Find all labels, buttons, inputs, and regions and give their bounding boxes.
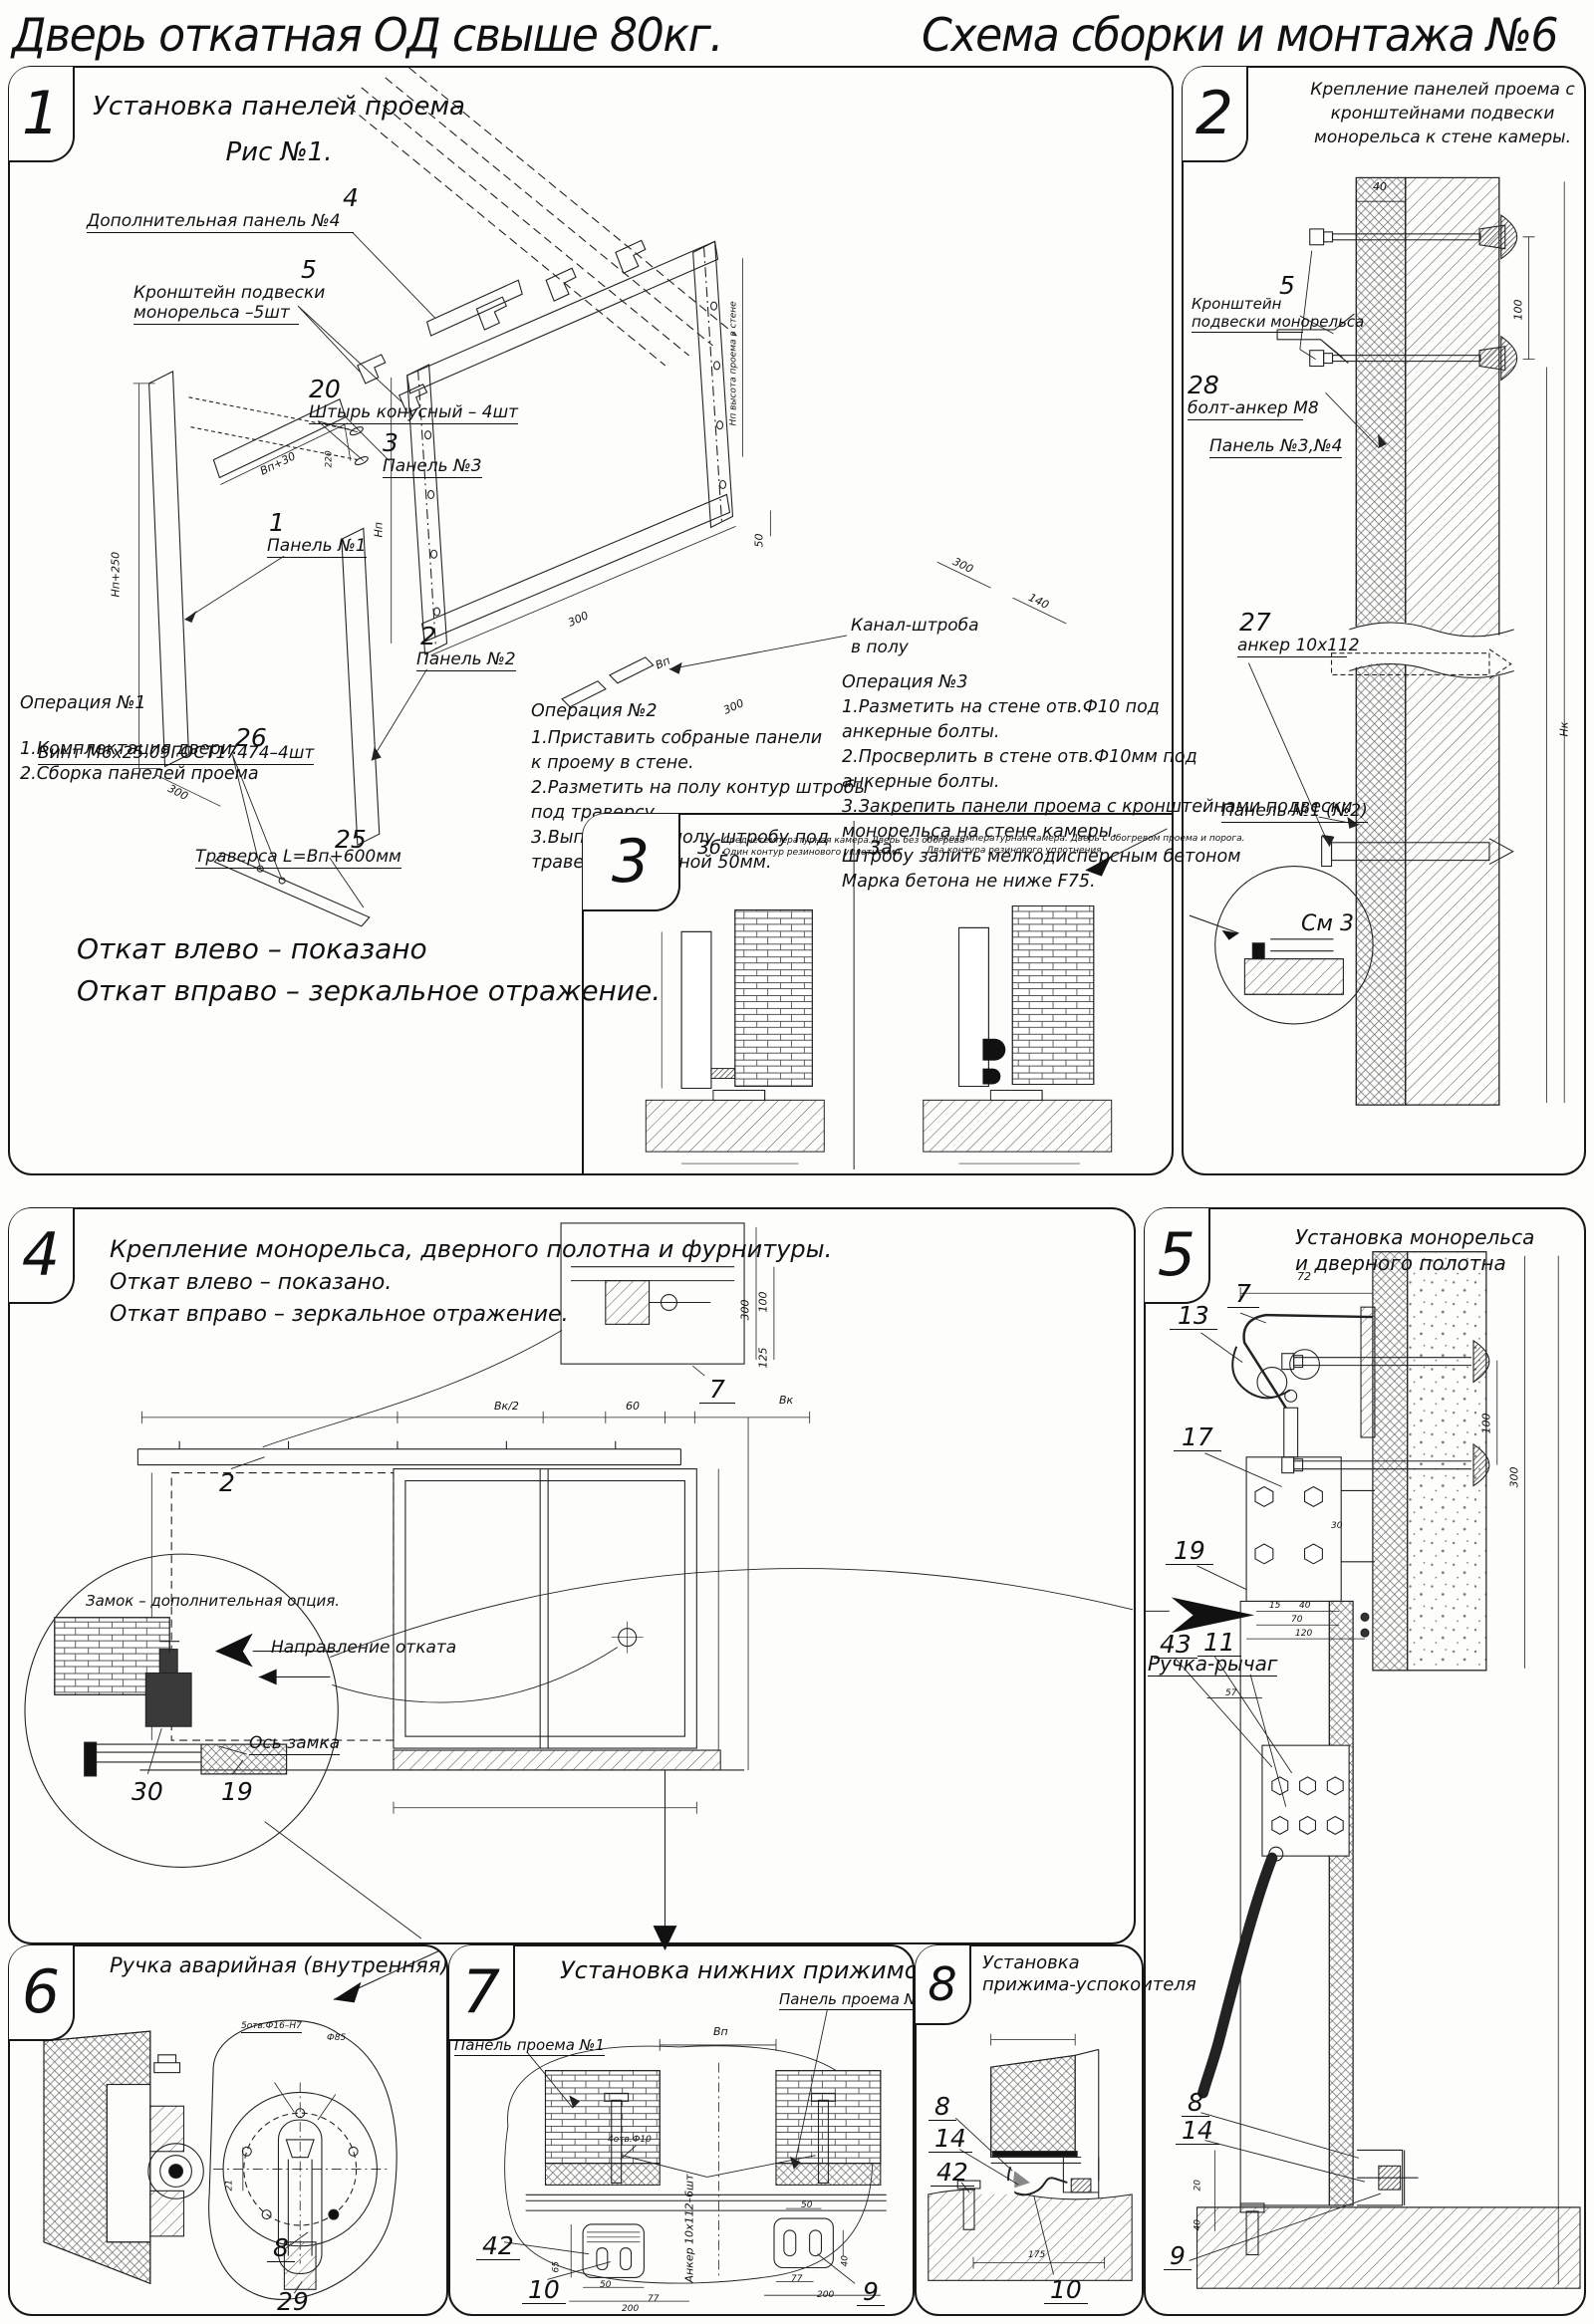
p5-callout-8: 8 [1182, 2090, 1209, 2117]
panel-2-title2: кронштейнами подвески [1303, 106, 1582, 124]
p8-callout-10: 10 [1044, 2277, 1088, 2304]
p5-dim-300: 300 [1508, 1467, 1520, 1488]
p2-panel34-label: Панель №3,№4 [1209, 438, 1342, 458]
p4-dim-vk2: Вк/2 [494, 1401, 519, 1413]
p2-callout-5-l1: Кронштейн [1192, 297, 1281, 313]
p4-callout-30: 30 [132, 1779, 163, 1805]
p5-dim-100: 100 [1480, 1414, 1492, 1434]
panel-3-number: 3 [583, 814, 680, 911]
callout-3-num: 3 [383, 430, 398, 456]
p7-callout-42: 42 [476, 2233, 520, 2260]
panel-5-title1: Установка монорельса [1295, 1227, 1534, 1248]
panel-8-number: 8 [916, 1945, 971, 2025]
p5-callout-13: 13 [1170, 1303, 1217, 1330]
note-right: Откат вправо – зеркальное отражение. [77, 976, 661, 1005]
panel-6-number: 6 [9, 1945, 75, 2041]
dim-220: 220 [326, 450, 335, 467]
panel-8-num-text: 8 [928, 1957, 956, 2011]
p7-panel2-label: Панель проема №2 [779, 1992, 930, 2010]
p8-callout-8: 8 [929, 2094, 956, 2121]
op1-line2: 2.Сборка панелей проема [20, 762, 259, 787]
p5-dim-20: 20 [1195, 2180, 1203, 2191]
p6-holes-label: 5отв.Ф16–Н7 [241, 2022, 302, 2033]
p5-dim-30: 30 [1331, 1522, 1342, 1531]
panel-1-subtitle: Рис №1. [80, 139, 478, 166]
p4-callout-7: 7 [699, 1377, 735, 1404]
p5-callout-7: 7 [1227, 1281, 1259, 1308]
p7-dim-vp: Вп [713, 2026, 728, 2038]
p6-callout-8: 8 [267, 2235, 295, 2262]
panel-4-num-text: 4 [22, 1220, 60, 1290]
panel-2-title3: монорельса к стене камеры. [1303, 129, 1582, 147]
p4-dim-vk: Вк [779, 1395, 793, 1407]
panel-5: 5 Установка монорельса и дверного полотн… [1144, 1207, 1586, 2316]
panel-4-title3: Откат вправо – зеркальное отражение. [110, 1303, 569, 1326]
p2-dim-40: 40 [1373, 181, 1387, 193]
callout-2-num: 2 [420, 624, 436, 649]
panel-7-number: 7 [449, 1945, 515, 2041]
p4-lock-axis-label: Ось замка [249, 1735, 340, 1755]
op2-line2: к проему в стене. [531, 751, 694, 776]
panel-3-num-text: 3 [612, 827, 650, 897]
p4-callout-2: 2 [219, 1470, 235, 1496]
fig3a-num: 3а. [869, 839, 899, 859]
p5-callout-17: 17 [1174, 1424, 1221, 1451]
panel-5-num-text: 5 [1158, 1220, 1195, 1290]
p2-callout-5-l2: подвески монорельса [1192, 315, 1303, 333]
p2-see3-label: См 3 [1301, 912, 1354, 935]
p2-dim-100: 100 [1512, 300, 1524, 321]
panel-4-number: 4 [9, 1208, 75, 1304]
panel-8-title1: Установка [982, 1954, 1080, 1973]
p7-dim-200b: 200 [817, 2291, 834, 2300]
p4-lock-note: Замок – дополнительная опция. [86, 1594, 340, 1610]
panel-2-number: 2 [1183, 67, 1248, 162]
panel-4: 4 Крепление монорельса, дверного полотна… [8, 1207, 1136, 1944]
callout-4-num: 4 [343, 185, 359, 211]
p7-dim-200a: 200 [622, 2305, 639, 2314]
p2-panel12-label: Панель №1 (№2) [1221, 803, 1368, 823]
callout-3-label: Панель №3 [383, 458, 482, 478]
op1-line1: 1.Комплектация двери. [20, 737, 238, 762]
op3-line1: 1.Разметить на стене отв.Ф10 под [842, 695, 1160, 720]
panel-1-title: Установка панелей проема [80, 94, 478, 121]
p5-dim-70: 70 [1291, 1616, 1302, 1625]
sheet-title: Дверь откатная ОД свыше 80кг. Схема сбор… [12, 8, 1584, 62]
p7-callout-9: 9 [857, 2279, 885, 2306]
p8-callout-42: 42 [930, 2160, 974, 2187]
panel-3: 3 3б. Среднетемпературная камера.Дверь б… [582, 813, 1174, 1175]
p7-callout-10: 10 [522, 2277, 566, 2304]
p4-dim-300: 300 [739, 1300, 751, 1321]
p6-callout-29: 29 [271, 2289, 315, 2316]
p4-dim-125: 125 [757, 1348, 769, 1369]
p7-dim-65: 65 [553, 2261, 562, 2272]
panel-7-num-text: 7 [462, 1957, 500, 2027]
p2-callout-5-num: 5 [1279, 273, 1295, 299]
callout-5-label2: монорельса –5шт [133, 305, 299, 325]
p7-panel1-label: Панель проема №1 [454, 2038, 605, 2056]
callout-1-label: Панель №1 [267, 538, 367, 558]
panel-8-title2: прижима-успокоителя [982, 1976, 1196, 1995]
note-left: Откат влево – показано [77, 934, 427, 963]
callout-20-label: Штырь конусный – 4шт [309, 404, 518, 424]
p5-dim-15: 15 [1269, 1602, 1280, 1611]
fig3a-caption1: Низкотемпературная камера. Дверь с обогр… [927, 835, 1245, 844]
panel-4-title2: Откат влево – показано. [110, 1271, 392, 1294]
p2-callout-27-num: 27 [1239, 610, 1271, 636]
p7-dim-50b: 50 [801, 2201, 812, 2210]
p7-holes-label: 4отв.Ф10 [608, 2136, 652, 2145]
op3-line2: анкерные болты. [842, 720, 999, 745]
p4-direction-label: Направление отката [271, 1640, 456, 1658]
p7-dim-77b: 77 [791, 2275, 802, 2284]
panel-2: 2 Крепление панелей проема с кронштейнам… [1182, 66, 1586, 1175]
panel-7-title: Установка нижних прижимов [560, 1958, 859, 1983]
panel-8: 8 Установка прижима-успокоителя 8 14 42 … [915, 1944, 1144, 2316]
p7-anchor-label: Анкер 10х112–6шт [683, 2174, 695, 2282]
p5-dim-57: 57 [1225, 1689, 1236, 1698]
panel-6-title: Ручка аварийная (внутренняя) [110, 1954, 428, 1976]
callout-5-num: 5 [301, 257, 317, 283]
p5-handle-label: Ручка-рычаг [1148, 1654, 1277, 1677]
panel-6-drawing [10, 1946, 446, 2314]
panel-5-number: 5 [1145, 1208, 1210, 1304]
p6-dim-21: 21 [226, 2180, 235, 2191]
p5-callout-9: 9 [1164, 2243, 1192, 2270]
p8-callout-14: 14 [929, 2126, 972, 2153]
p4-callout-19: 19 [221, 1779, 253, 1805]
p5-dim-72: 72 [1297, 1271, 1311, 1283]
panel-2-title1: Крепление панелей проема с [1303, 82, 1582, 100]
title-left: Дверь откатная ОД свыше 80кг. [12, 8, 722, 62]
panel-2-num-text: 2 [1195, 79, 1233, 148]
title-right: Схема сборки и монтажа №6 [922, 8, 1557, 62]
panel-1-number: 1 [9, 67, 75, 162]
dim-wall-height: Нп высота проема в стене [730, 301, 739, 425]
p8-dim-175: 175 [1028, 2251, 1045, 2260]
p7-dim-40: 40 [842, 2255, 851, 2266]
p4-dim-60: 60 [626, 1401, 640, 1413]
dim-np250: Нп+250 [110, 552, 122, 598]
p2-dim-nk: Нк [1558, 722, 1570, 737]
op2-line1: 1.Приставить собраные панели [531, 726, 822, 751]
p5-dim-40b: 40 [1195, 2219, 1203, 2230]
op3-title: Операция №3 [842, 670, 968, 695]
kanal-label1: Канал-штроба [851, 618, 979, 636]
op3-line3: 2.Просверлить в стене отв.Ф10мм под [842, 745, 1197, 770]
callout-2-label: Панель №2 [416, 651, 516, 671]
dim-50: 50 [753, 534, 765, 548]
p5-dim-120: 120 [1295, 1630, 1312, 1639]
p5-callout-14: 14 [1176, 2118, 1219, 2145]
panel-7: 7 Установка нижних прижимов Панель проем… [448, 1944, 915, 2316]
p2-callout-28-label: болт-анкер М8 [1188, 400, 1303, 420]
op3-line4: анкерные болты. [842, 770, 999, 795]
callout-20-num: 20 [309, 377, 341, 402]
kanal-label2: в полу [851, 640, 909, 657]
callout-4-label: Дополнительная панель №4 [87, 213, 354, 233]
op2-line3: 2.Разметить на полу контур штробы [531, 776, 868, 801]
p5-dim-40: 40 [1299, 1602, 1310, 1611]
fig3a-caption2: Два контура резинового уплотнения [927, 847, 1102, 856]
panel-1-num-text: 1 [22, 79, 60, 148]
p4-dim-100: 100 [757, 1292, 769, 1313]
p6-dia-label: Ф85 [327, 2034, 346, 2043]
panel-6-num-text: 6 [22, 1957, 60, 2027]
drawing-sheet: Дверь откатная ОД свыше 80кг. Схема сбор… [0, 0, 1594, 2324]
p2-callout-27-label: анкер 10х112 [1237, 638, 1347, 657]
panel-5-title2: и дверного полотна [1295, 1253, 1506, 1274]
panel-4-title1: Крепление монорельса, дверного полотна и… [110, 1237, 832, 1262]
dim-np: Нп [373, 522, 385, 537]
callout-5-label1: Кронштейн подвески [133, 285, 325, 303]
callout-1-num: 1 [269, 510, 285, 536]
panel-5-drawing [1146, 1209, 1584, 2314]
op2-title: Операция №2 [531, 699, 658, 724]
op1-title: Операция №1 [20, 691, 146, 716]
p7-dim-77a: 77 [648, 2295, 659, 2304]
callout-25-label: Траверса L=Вп+600мм [195, 849, 401, 869]
p5-callout-19: 19 [1166, 1538, 1213, 1565]
p7-dim-50a: 50 [600, 2281, 611, 2290]
panel-6: 6 Ручка аварийная (внутренняя) 5отв.Ф16–… [8, 1944, 448, 2316]
p2-callout-28-num: 28 [1188, 373, 1219, 398]
